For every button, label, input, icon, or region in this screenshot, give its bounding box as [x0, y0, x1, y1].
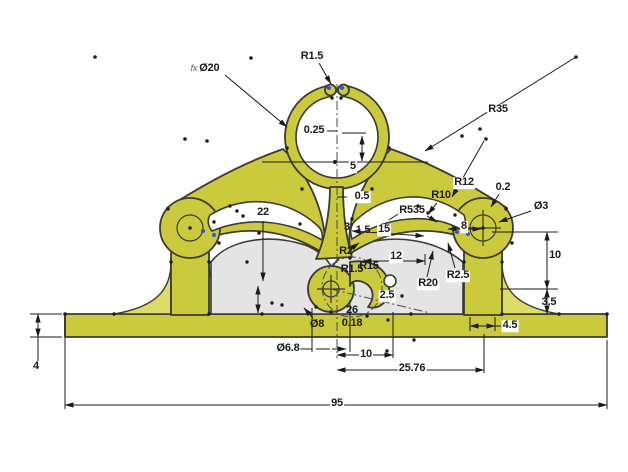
dim-label-d4[interactable]: 4 — [32, 361, 40, 373]
cad-sketch-svg — [0, 0, 628, 472]
dim-label-text: 4 — [33, 360, 39, 372]
dim-label-text: R535 — [399, 204, 425, 216]
dim-label-text: R20 — [418, 277, 438, 289]
ext-4 — [30, 314, 62, 361]
base-plate[interactable] — [65, 314, 607, 337]
dim-label-text: 0.25 — [304, 124, 325, 136]
dim-label-text: 0.2 — [496, 181, 511, 193]
dim-label-r25[interactable]: R2.5 — [446, 270, 470, 282]
dim-label-d26[interactable]: 26 — [345, 305, 359, 317]
dim-label-text: 2.5 — [380, 289, 395, 301]
dim-label-d8gap[interactable]: 8 — [460, 221, 468, 233]
right-tip-circle[interactable] — [338, 85, 349, 96]
dim-label-r2[interactable]: R2 — [338, 246, 354, 258]
dim-label-text: 25.76 — [399, 362, 426, 374]
dim-label-d02[interactable]: 0.2 — [495, 182, 512, 194]
dim-label-r15c[interactable]: R15 — [358, 261, 380, 273]
dim-label-text: R1.5 — [301, 50, 323, 62]
dim-label-text: 15 — [378, 223, 390, 235]
fx-driven-icon: fx — [191, 63, 198, 73]
dim-label-d10b[interactable]: 10 — [359, 349, 373, 361]
leader-r15-top[interactable] — [319, 63, 331, 84]
left-boss-center-point[interactable] — [188, 226, 192, 230]
dim-label-dia8[interactable]: Ø8 — [309, 319, 325, 331]
origin-point[interactable] — [333, 160, 337, 164]
dim-label-d018[interactable]: 0.18 — [341, 318, 364, 330]
dim-label-r12[interactable]: R12 — [453, 177, 475, 189]
dim-label-d10r[interactable]: 10 — [548, 250, 562, 262]
dim-label-d05[interactable]: 0.5 — [354, 191, 371, 203]
sketch-canvas[interactable]: fxØ20R1.5R350.2550.522R12R100.2Ø3R53531.… — [0, 0, 628, 472]
dim-label-d025[interactable]: 0.25 — [303, 125, 326, 137]
dim-label-text: 3 — [344, 221, 350, 233]
dim-label-d5c[interactable]: 5 — [349, 161, 357, 173]
dim-label-d25[interactable]: 2.5 — [379, 290, 396, 302]
dim-label-text: 0.5 — [355, 190, 370, 202]
leader-d20[interactable] — [225, 75, 287, 127]
dim-label-d20[interactable]: fxØ20 — [190, 63, 221, 75]
dim-label-r20[interactable]: R20 — [417, 278, 439, 290]
dim-label-dia68[interactable]: Ø6.8 — [275, 343, 300, 355]
dim-label-d2576[interactable]: 25.76 — [398, 363, 427, 375]
dim-label-text: 0.18 — [342, 317, 363, 329]
dim-label-text: R12 — [454, 176, 474, 188]
dim-label-text: 3.5 — [542, 296, 557, 308]
dim-label-text: Ø20 — [199, 62, 219, 74]
dim-label-text: 4.5 — [503, 319, 518, 331]
dim-label-text: 95 — [331, 397, 343, 409]
dim-label-text: Ø3 — [534, 200, 548, 212]
dim-label-text: 10 — [549, 249, 561, 261]
dim-label-r10[interactable]: R10 — [430, 190, 452, 202]
dim-label-text: 12 — [390, 250, 402, 262]
dim-label-r535[interactable]: R535 — [398, 205, 426, 217]
dim-label-r35[interactable]: R35 — [487, 104, 509, 116]
dim-label-text: 8 — [461, 220, 467, 232]
dim-label-d95[interactable]: 95 — [330, 398, 344, 410]
dim-label-text: Ø8 — [310, 318, 324, 330]
dim-label-text: 22 — [257, 206, 269, 218]
dim-label-text: R2.5 — [447, 269, 469, 281]
left-outer-flare[interactable] — [114, 262, 171, 314]
part-geometry[interactable] — [65, 78, 607, 337]
dim-label-d12[interactable]: 12 — [389, 251, 403, 263]
dim-label-text: 5 — [350, 160, 356, 172]
dim-label-text: R2 — [339, 245, 353, 257]
dim-label-d22[interactable]: 22 — [256, 207, 270, 219]
dim-label-text: 1.5 — [356, 224, 371, 236]
dim-label-d15[interactable]: 15 — [377, 224, 391, 236]
dim-label-text: R10 — [431, 189, 451, 201]
dim-label-d45[interactable]: 4.5 — [502, 320, 519, 332]
dim-label-text: 26 — [346, 304, 358, 316]
dim-label-text: Ø6.8 — [276, 342, 299, 354]
dim-label-d15s[interactable]: 1.5 — [355, 225, 372, 237]
dim-label-text: R15 — [359, 260, 379, 272]
dim-label-dia3[interactable]: Ø3 — [533, 201, 549, 213]
dim-label-d3[interactable]: 3 — [343, 222, 351, 234]
dim-label-r15top[interactable]: R1.5 — [300, 51, 324, 63]
dim-label-text: 10 — [360, 348, 372, 360]
dim-label-text: R35 — [488, 103, 508, 115]
dim-label-d35[interactable]: 3.5 — [541, 297, 558, 309]
left-tip-circle[interactable] — [325, 85, 336, 96]
swirl-small-hole[interactable] — [384, 275, 396, 287]
